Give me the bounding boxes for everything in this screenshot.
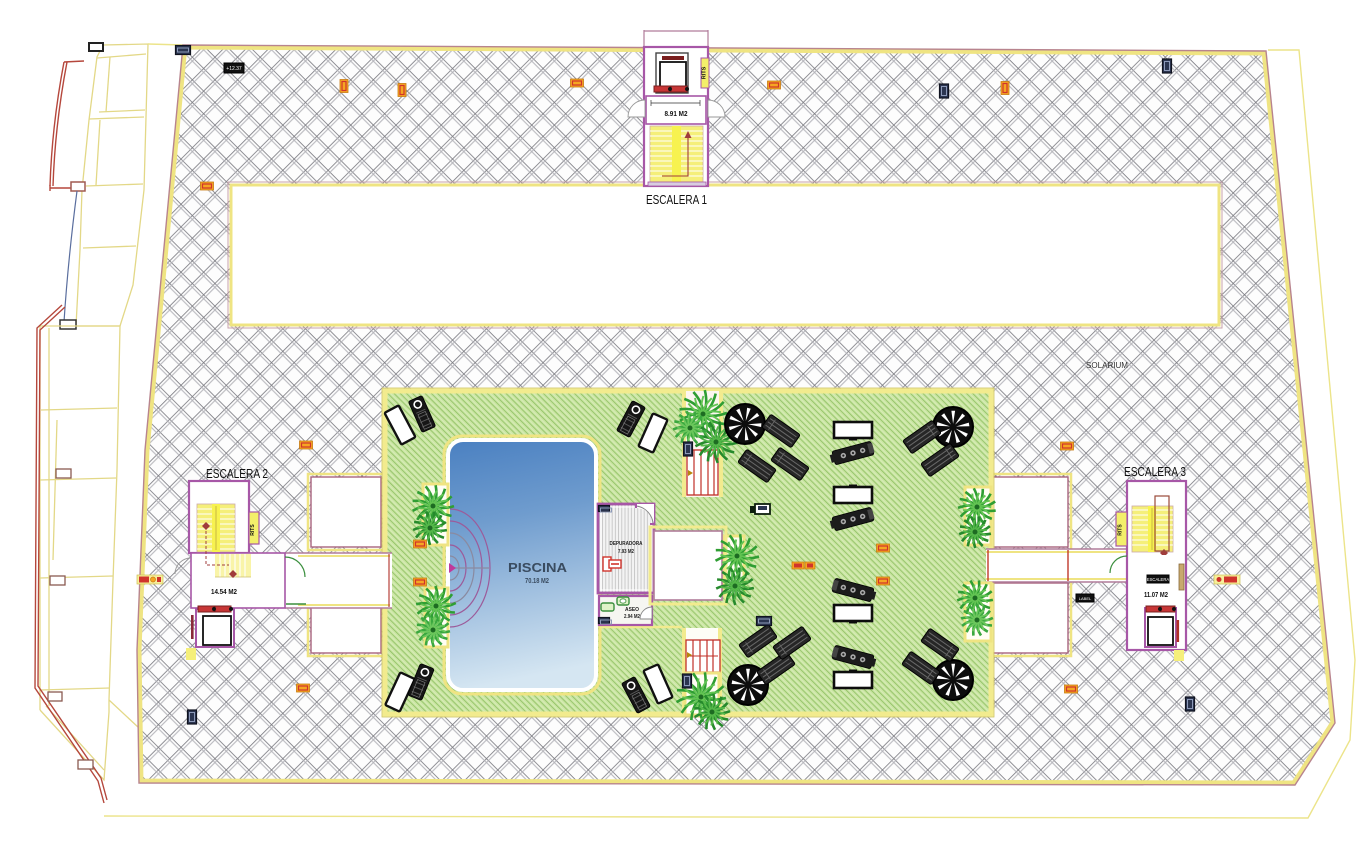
svg-text:14.54 M2: 14.54 M2: [211, 589, 237, 596]
svg-text:7.93 M2: 7.93 M2: [618, 549, 634, 555]
svg-text:RITS: RITS: [702, 66, 708, 79]
svg-text:70.18 M2: 70.18 M2: [525, 578, 549, 585]
svg-text:LABEL: LABEL: [1079, 596, 1092, 601]
svg-text:SOLARIUM: SOLARIUM: [1086, 361, 1128, 370]
svg-text:RITS: RITS: [250, 524, 256, 536]
svg-text:PISCINA: PISCINA: [508, 560, 568, 575]
svg-text:RITS: RITS: [1118, 524, 1124, 536]
svg-text:11.07 M2: 11.07 M2: [1144, 592, 1168, 599]
svg-text:ASEO: ASEO: [625, 607, 640, 613]
svg-text:ESCALERA: ESCALERA: [1147, 577, 1170, 582]
svg-text:DEPURADORA: DEPURADORA: [610, 541, 643, 547]
svg-text:ESCALERA 3: ESCALERA 3: [1124, 464, 1186, 479]
svg-text:+12.37: +12.37: [226, 66, 242, 72]
svg-text:2.94 M2: 2.94 M2: [624, 614, 640, 620]
svg-text:ESCALERA 1: ESCALERA 1: [646, 192, 707, 207]
svg-text:8.91 M2: 8.91 M2: [665, 111, 688, 118]
svg-text:ESCALERA 2: ESCALERA 2: [206, 466, 268, 481]
